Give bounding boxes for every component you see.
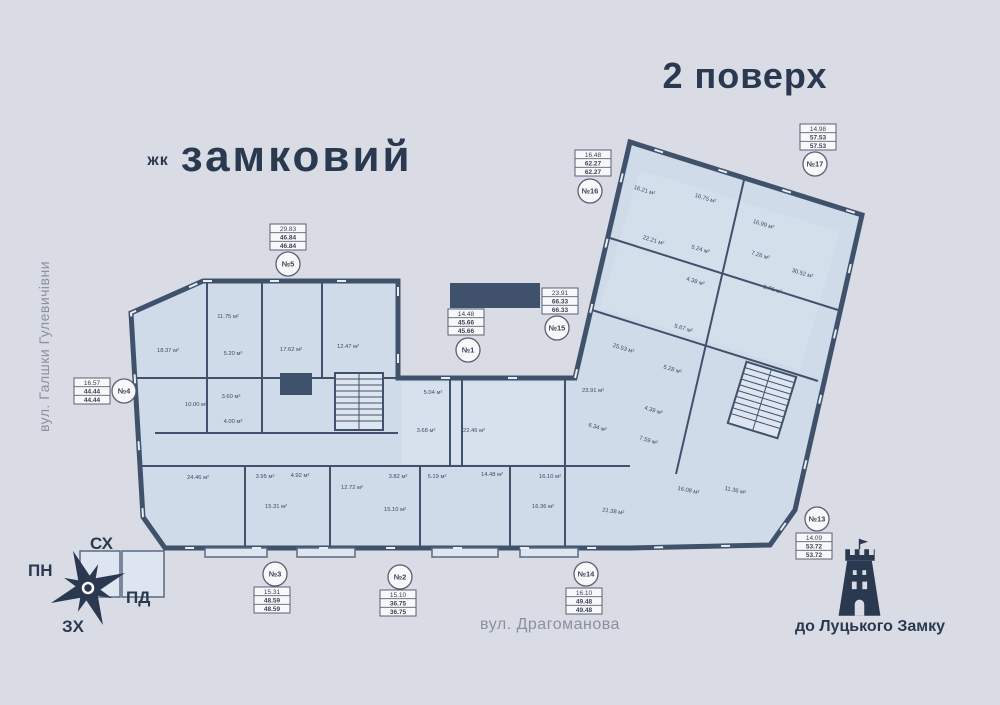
- compass-label-north: ПН: [28, 561, 53, 581]
- room-area-label: 23.91 м²: [582, 388, 604, 394]
- building: [80, 142, 862, 597]
- room-area-label: 4.00 м²: [224, 419, 243, 425]
- street-name-left: вул. Галшки Гулевичівни: [36, 182, 52, 432]
- apartment-number-label: №16: [582, 187, 599, 196]
- apartment-area-value: 15.10: [390, 592, 407, 599]
- room-area-label: 17.62 м²: [280, 347, 302, 353]
- compass-label-south: ПД: [126, 588, 150, 608]
- logo-name: замковий: [181, 132, 413, 182]
- room-area-label: 18.37 м²: [157, 348, 179, 354]
- room-area-label: 15.10 м²: [384, 507, 406, 513]
- apartment-number-label: №15: [549, 324, 566, 333]
- apartment-area-value: 62.27: [585, 160, 602, 167]
- room-area-label: 14.48 м²: [481, 472, 503, 478]
- apartment-area-value: 14.98: [810, 126, 827, 133]
- apartment-area-value: 57.53: [810, 143, 827, 150]
- apartment-area-value: 46.84: [280, 234, 297, 241]
- room-area-label: 11.75 м²: [217, 314, 239, 320]
- apartment-area-value: 23.91: [552, 290, 569, 297]
- apartment-number-label: №2: [394, 573, 407, 582]
- room-area-label: 16.10 м²: [539, 474, 561, 480]
- apartment-area-value: 57.53: [810, 134, 827, 141]
- apartment-area-value: 49.48: [576, 607, 593, 614]
- logo-prefix: жк: [147, 152, 168, 170]
- apartment-area-value: 16.57: [84, 380, 101, 387]
- apartment-marker-n13[interactable]: 14.0953.7253.72№13: [796, 507, 832, 559]
- landmark-label: до Луцького Замку: [765, 618, 975, 636]
- room-area-label: 4.92 м²: [291, 473, 310, 479]
- apartment-marker-n17[interactable]: 14.9857.5357.53№17: [800, 124, 836, 176]
- apartment-marker-n5[interactable]: 29.8346.8446.84№5: [270, 224, 306, 276]
- apartment-area-value: 66.33: [552, 307, 569, 314]
- floor-title: 2 поверх: [620, 55, 870, 97]
- castle-icon: [839, 539, 881, 616]
- room-area-label: 10.00 м²: [185, 402, 207, 408]
- room-area-label: 3.60 м²: [222, 394, 241, 400]
- apartment-number-label: №3: [269, 570, 282, 579]
- apartment-area-value: 36.75: [390, 600, 407, 607]
- apartment-marker-n15[interactable]: 23.9166.3366.33№15: [542, 288, 578, 340]
- apartment-area-value: 16.48: [585, 152, 602, 159]
- room-area-label: 3.95 м²: [256, 474, 275, 480]
- room-area-label: 15.31 м²: [265, 504, 287, 510]
- apartment-marker-n3[interactable]: 15.3148.5948.59№3: [254, 562, 290, 613]
- apartment-area-value: 46.84: [280, 243, 297, 250]
- apartment-area-value: 45.66: [458, 328, 475, 335]
- room-area-label: 3.68 м²: [417, 428, 436, 434]
- street-name-bottom: вул. Драгоманова: [435, 616, 665, 634]
- apartment-area-value: 14.09: [806, 535, 823, 542]
- compass-label-west: ЗХ: [62, 617, 84, 637]
- elevator-shaft: [280, 373, 312, 395]
- room-area-label: 22.46 м²: [463, 428, 485, 434]
- apartment-marker-n4[interactable]: 16.5744.4444.44№4: [74, 378, 136, 404]
- room-area-label: 5.19 м²: [428, 474, 447, 480]
- apartment-area-value: 44.44: [84, 388, 101, 395]
- apartment-area-value: 16.10: [576, 590, 593, 597]
- apartment-number-label: №14: [578, 570, 596, 579]
- apartment-number-label: №13: [809, 515, 826, 524]
- staircase-left: [335, 373, 383, 430]
- apartment-area-value: 48.59: [264, 606, 281, 613]
- apartment-marker-n2[interactable]: 15.1036.7536.75№2: [380, 565, 416, 616]
- apartment-area-value: 53.72: [806, 543, 823, 550]
- apartment-area-value: 44.44: [84, 397, 101, 404]
- room-area-label: 5.04 м²: [424, 390, 443, 396]
- apartment-number-label: №4: [118, 387, 131, 396]
- apartment-area-value: 15.31: [264, 589, 281, 596]
- apartment-marker-n14[interactable]: 16.1049.4849.48№14: [566, 562, 602, 614]
- balconies: [80, 548, 578, 597]
- room-area-label: 12.72 м²: [341, 485, 363, 491]
- apartment-area-value: 66.33: [552, 298, 569, 305]
- complex-logo: жк замковий: [115, 132, 445, 182]
- apartment-area-value: 45.66: [458, 319, 475, 326]
- apartment-area-value: 49.48: [576, 598, 593, 605]
- apartment-area-value: 62.27: [585, 169, 602, 176]
- room-area-label: 24.46 м²: [187, 475, 209, 481]
- apartment-area-value: 29.83: [280, 226, 297, 233]
- apartment-number-label: №1: [462, 346, 475, 355]
- apartment-number-label: №17: [807, 160, 824, 169]
- apartment-area-value: 14.48: [458, 311, 475, 318]
- apartment-area-value: 36.75: [390, 609, 407, 616]
- apartment-area-value: 53.72: [806, 552, 823, 559]
- room-area-label: 12.47 м²: [337, 344, 359, 350]
- floor-plan-page: 18.37 м²11.75 м²5.20 м²17.62 м²12.47 м²1…: [0, 0, 1000, 705]
- room-area-label: 16.36 м²: [532, 504, 554, 510]
- core-roof-section: [450, 283, 540, 308]
- apartment-number-label: №5: [282, 260, 295, 269]
- apartment-marker-n16[interactable]: 16.4862.2762.27№16: [575, 150, 611, 203]
- apartment-marker-n1[interactable]: 14.4845.6645.66№1: [448, 309, 484, 362]
- room-area-label: 3.82 м²: [389, 474, 408, 480]
- apartment-area-value: 48.59: [264, 597, 281, 604]
- compass-label-east: СХ: [90, 534, 113, 554]
- room-area-label: 5.20 м²: [224, 351, 243, 357]
